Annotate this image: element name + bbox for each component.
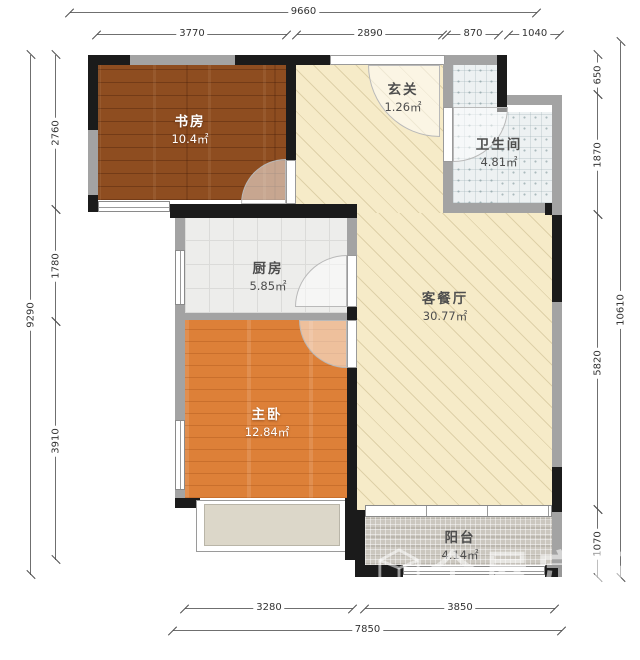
balcony-sliding-door [365,505,552,517]
dim-bottom-segment-2: 3850 [365,608,555,609]
wall [443,203,545,213]
wall [175,320,185,420]
bathroom-door [443,107,453,162]
wall [88,130,98,195]
dim-top-segment-4: 1040 [509,34,560,35]
room-label-entry: 玄关 1.26㎡ [384,82,421,114]
wall [545,565,562,577]
dim-right-segment-2: 1870 [597,95,598,215]
wall [507,95,562,105]
room-label-kitchen: 厨房 5.85㎡ [249,261,286,293]
bedroom-door [347,320,357,368]
room-area: 12.84㎡ [245,425,289,439]
dim-left-segment-2: 1780 [55,210,56,322]
room-area: 30.77㎡ [422,309,469,323]
room-label-bathroom: 卫生间 4.81㎡ [476,137,523,169]
wall [347,307,357,320]
floor-plan: 书房 10.4㎡ 玄关 1.26㎡ 卫生间 4.81㎡ 厨房 5.85㎡ 客餐厅… [0,0,640,660]
dim-value: 3770 [176,28,207,39]
dim-right-segment-3: 5820 [597,215,598,510]
study-window [98,201,170,212]
wall [497,55,507,112]
dim-value: 7850 [352,624,383,635]
dim-left-segment-3: 3910 [55,322,56,560]
wall [552,512,562,565]
wall [88,195,98,212]
kitchen-door [347,255,357,307]
room-label-balcony: 阳台 4.14㎡ [441,530,478,562]
dim-value: 2760 [51,117,62,148]
wall [286,55,296,160]
dim-left-total: 9290 [30,55,31,575]
dim-value: 650 [593,62,604,87]
wall [443,64,453,107]
room-name: 厨房 [249,261,286,278]
wall [185,313,347,320]
dim-right-total: 10610 [620,42,621,578]
room-name: 主卧 [245,407,289,424]
bay-window-seat [204,504,340,546]
room-area: 4.81㎡ [476,155,523,169]
wall [355,565,403,577]
dim-top-segment-3: 870 [447,34,499,35]
room-name: 客餐厅 [422,291,469,308]
room-label-living-dining: 客餐厅 30.77㎡ [422,291,469,323]
dim-bottom-segment-1: 3280 [185,608,353,609]
dim-bottom-total: 7850 [173,630,562,631]
dim-top-segment-2: 2890 [297,34,443,35]
room-name: 玄关 [384,82,421,99]
dim-value: 10610 [616,291,627,329]
wall [175,305,185,320]
dim-right-segment-4: 1070 [597,510,598,578]
dim-value: 3280 [253,602,284,613]
dim-left-segment-1: 2760 [55,55,56,210]
wall [235,55,330,65]
room-area: 10.4㎡ [171,132,208,146]
dim-value: 3910 [51,425,62,456]
dim-value: 3850 [444,602,475,613]
dim-value: 1040 [519,28,550,39]
room-label-study: 书房 10.4㎡ [171,114,208,146]
wall [347,218,357,255]
dim-value: 1870 [593,139,604,170]
wall [552,302,562,467]
balcony-railing [403,566,545,575]
dim-value: 870 [460,28,485,39]
study-door [286,160,296,204]
dim-value: 5820 [593,347,604,378]
wall [175,218,185,250]
wall [88,55,98,130]
room-area: 4.14㎡ [441,548,478,562]
entry-door-opening [330,55,445,65]
wall [347,368,357,510]
room-area: 5.85㎡ [249,279,286,293]
wall [552,467,562,512]
bedroom-window [175,420,185,490]
kitchen-window [175,250,185,305]
dim-top-total: 9660 [70,12,537,13]
dim-value: 2890 [354,28,385,39]
room-name: 书房 [171,114,208,131]
room-label-master-bedroom: 主卧 12.84㎡ [245,407,289,439]
wall [170,204,357,218]
room-name: 阳台 [441,530,478,547]
room-name: 卫生间 [476,137,523,154]
dim-value: 9660 [288,6,319,17]
dim-value: 9290 [26,299,37,330]
wall [130,55,235,65]
dim-right-segment-1: 650 [597,55,598,95]
room-area: 1.26㎡ [384,100,421,114]
living-dining-floor [357,213,552,510]
wall [552,215,562,302]
dim-value: 1780 [51,250,62,281]
wall [552,105,562,215]
dim-value: 1070 [593,528,604,559]
dim-top-segment-1: 3770 [97,34,287,35]
